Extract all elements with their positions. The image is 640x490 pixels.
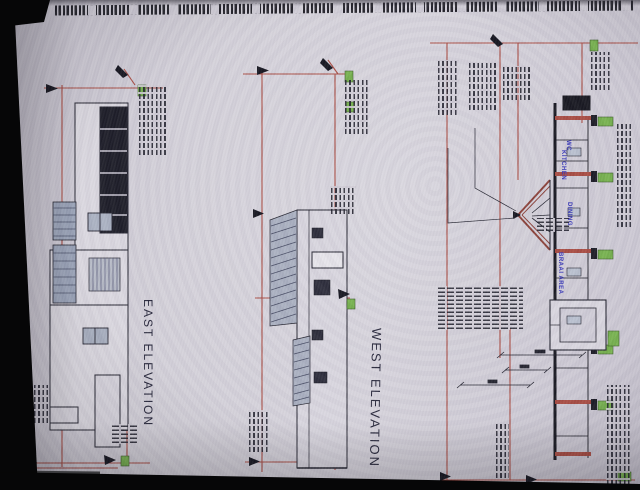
east-elevation-label: EAST ELEVATION — [141, 299, 155, 427]
annotation-text-block — [537, 218, 569, 232]
annotation-text-block — [437, 60, 459, 115]
annotation-text-block — [495, 423, 509, 478]
annotation-text-block — [438, 286, 523, 330]
west-elevation-label: WEST ELEVATION — [367, 328, 384, 468]
section-hatched-footing — [563, 96, 590, 110]
annotation-text-block — [468, 62, 496, 110]
section-leader-lines — [448, 128, 516, 223]
section-column-caps — [591, 115, 597, 410]
paper-top-shadow — [48, 0, 640, 6]
annotation-text-block — [138, 85, 168, 155]
room-label-braai-area: BRAAI AREA — [557, 252, 563, 294]
annotation-text-block — [112, 424, 138, 444]
annotation-text-block — [590, 52, 612, 90]
annotation-text-block — [344, 80, 368, 134]
annotation-text-block — [606, 385, 630, 485]
section-roof-truss — [513, 180, 550, 250]
east-garage-door — [89, 258, 120, 291]
annotation-text-block — [502, 66, 530, 100]
annotation-text-block — [330, 186, 356, 214]
annotation-text-block — [616, 122, 632, 227]
room-label-kitchen: KITCHEN — [560, 150, 566, 180]
east-louvre-windows — [53, 202, 76, 303]
section-inner-dimensions — [457, 350, 586, 388]
annotation-text-block — [33, 385, 48, 423]
annotation-text-block — [248, 410, 268, 452]
section-garage — [550, 300, 606, 350]
photo-of-drawing-sheet: EAST ELEVATION — [0, 0, 640, 490]
